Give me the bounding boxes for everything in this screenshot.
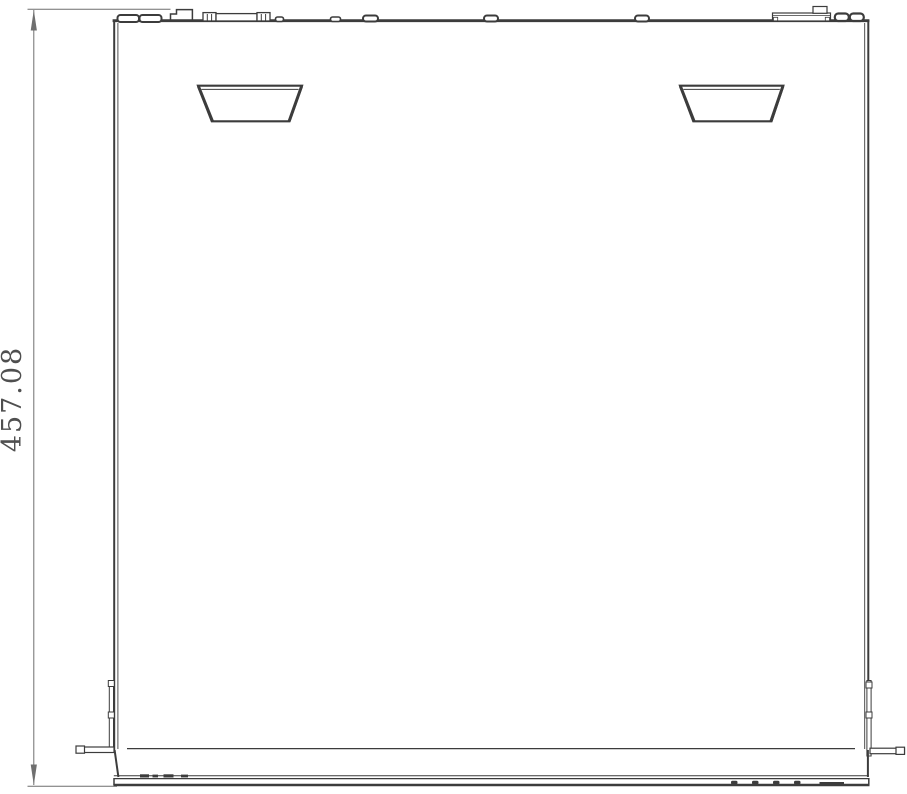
dim-arrow-up-icon xyxy=(31,10,37,31)
rear-post-1 xyxy=(276,17,284,22)
rack-ear-left xyxy=(76,681,114,754)
rear-bump-3 xyxy=(363,16,378,22)
top-view-drawing: 457.08 xyxy=(0,0,907,794)
cad-drawing-canvas: 457.08 xyxy=(0,0,907,794)
handle-recess-left xyxy=(198,86,302,122)
rear-bump-4 xyxy=(484,16,498,22)
rack-ear-right xyxy=(866,681,905,757)
ear-screw-notch xyxy=(866,712,872,718)
ear-flange-cap xyxy=(896,747,905,754)
rca-bump-right xyxy=(140,15,162,22)
handle-recess-right xyxy=(680,86,783,122)
terminal-block xyxy=(773,7,831,22)
rear-bump-5 xyxy=(635,16,649,22)
corner-bump-right xyxy=(850,14,864,22)
ear-screw-notch xyxy=(108,681,114,687)
dsub-post-right xyxy=(257,13,270,21)
dsub-post-left xyxy=(203,13,216,21)
ear-screw-notch xyxy=(108,712,114,718)
terminal-cap xyxy=(813,7,827,14)
panel-left-edge xyxy=(115,750,119,777)
rca-bump-left xyxy=(118,15,140,22)
panel-wide-slot xyxy=(820,782,845,785)
rear-post-2 xyxy=(331,17,341,22)
ear-screw-notch xyxy=(866,682,872,688)
ear-flange-cap xyxy=(76,746,85,753)
chassis-outline xyxy=(113,20,870,753)
corner-bump-left xyxy=(835,14,849,22)
dsub-body xyxy=(216,14,257,21)
dim-arrow-down-icon xyxy=(31,765,37,786)
front-panel xyxy=(113,749,869,786)
dimension-annotation: 457.08 xyxy=(0,9,171,786)
riser-connector xyxy=(171,10,193,21)
dimension-label: 457.08 xyxy=(0,346,28,452)
